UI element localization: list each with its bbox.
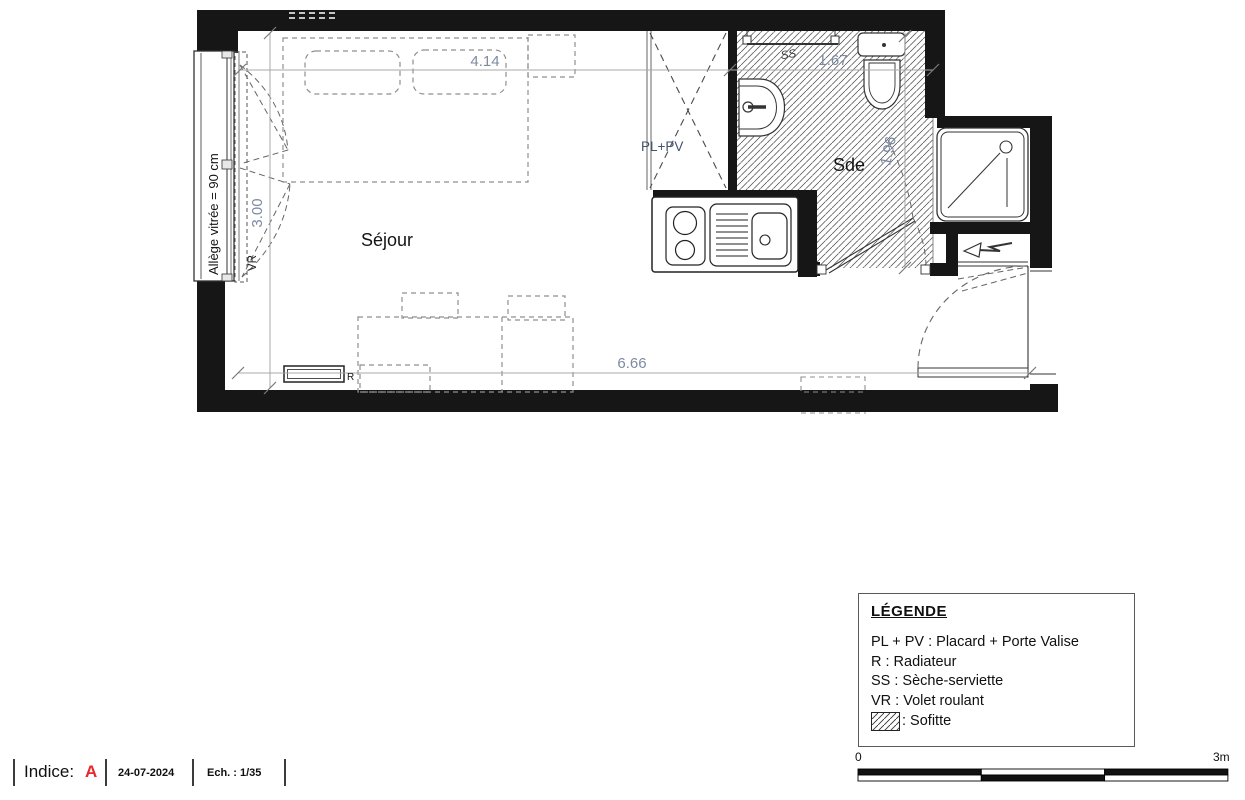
sink-bowl (752, 213, 787, 259)
window-mullion-bottom (222, 274, 232, 281)
legend-item-seche-serviette: SS : Sèche-serviette (871, 672, 1134, 692)
dim-sejour-height: 3.00 (249, 198, 266, 227)
indice-label: Indice: (24, 762, 74, 782)
plan-scale: Ech. : 1/35 (207, 767, 261, 779)
label-ss: SS (780, 48, 797, 62)
label-radiator: R (347, 372, 354, 383)
label-pl-pv: PL+PV (641, 139, 683, 154)
table (358, 317, 573, 392)
electrical-arrow-head (964, 243, 981, 257)
wall-stub-right (930, 263, 958, 276)
legend-item-pl-pv: PL + PV : Placard + Porte Valise (871, 633, 1134, 653)
wall-left-lower (197, 279, 225, 392)
legend-title: LÉGENDE (871, 603, 1134, 620)
closet-pl-pv (647, 31, 726, 190)
separator (192, 759, 194, 786)
shower-drain (1000, 141, 1012, 153)
dim-sde-width: 1.67 (818, 52, 847, 69)
washbasin (739, 79, 785, 136)
room-label-sejour: Séjour (361, 230, 413, 250)
window-mullion-top (222, 51, 232, 58)
hob-burner-1 (674, 212, 697, 235)
separator (284, 759, 286, 786)
hob-burner-2 (676, 241, 695, 260)
electrical-niche (958, 243, 1028, 266)
pillow-1 (305, 51, 400, 94)
bedside-table (528, 35, 575, 77)
wall-closet-sde (728, 28, 737, 192)
floor-plan-page: 4.14 1.67 3.00 1.96 6.66 Séjour Sde PL+P… (0, 0, 1245, 800)
legend: LÉGENDE PL + PV : Placard + Porte Valise… (858, 593, 1135, 747)
sde-door-jamb-right (921, 265, 930, 274)
chair-3 (360, 365, 430, 392)
window-mullion-mid (222, 160, 232, 169)
dim-sejour-width: 4.14 (470, 53, 499, 70)
plan-date: 24-07-2024 (118, 767, 174, 779)
room-label-sde: Sde (833, 155, 865, 175)
wall-left-upper (197, 10, 238, 53)
legend-item-sofitte: : Sofitte (871, 712, 1134, 732)
legend-item-volet-roulant: VR : Volet roulant (871, 692, 1134, 712)
separator (13, 759, 15, 786)
sde-door-jamb-left (817, 265, 826, 274)
legend-item-radiateur: R : Radiateur (871, 653, 1134, 673)
bed (283, 35, 575, 182)
shower (937, 128, 1028, 221)
sofitte-hatch-icon (871, 712, 900, 731)
wall-bottom (197, 390, 1058, 412)
dim-total-width: 6.66 (617, 355, 646, 372)
legend-sofitte-label: : Sofitte (902, 712, 951, 732)
label-allege: Allège vitrée = 90 cm (206, 153, 221, 275)
wall-niche-left (946, 231, 958, 266)
toilet-tank (858, 33, 905, 56)
dining-set (358, 293, 573, 392)
kitchenette (652, 197, 798, 272)
roller-shutter-vr (235, 52, 247, 282)
scale-bar-start: 0 (855, 750, 862, 764)
toilet-flush-button (882, 43, 886, 47)
wall-sde-right (925, 28, 945, 118)
separator (105, 759, 107, 786)
entrance-door (918, 266, 1056, 377)
indice-value: A (85, 762, 97, 782)
radiator (284, 366, 344, 382)
chair-1 (402, 293, 458, 318)
wall-right-column (1030, 118, 1052, 268)
label-vr: VR (247, 255, 259, 271)
scale-bar-end: 3m (1213, 750, 1230, 764)
sink-drain (760, 235, 770, 245)
wall-bottom-right-block (1030, 384, 1058, 412)
electrical-arrow (978, 243, 1012, 251)
wall-shower-bottom (930, 222, 1030, 234)
